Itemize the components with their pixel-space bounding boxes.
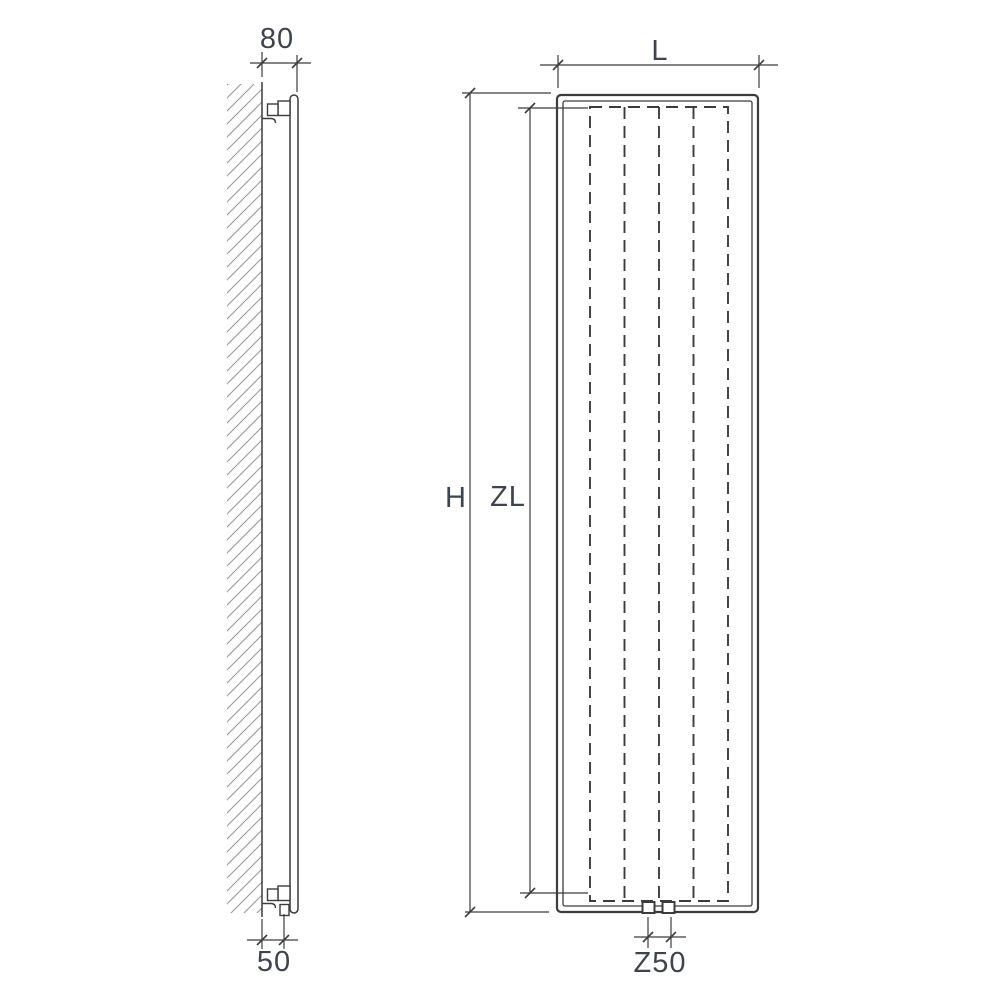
connection-stub-right: [663, 902, 675, 913]
bracket-arm-bottom: [278, 886, 290, 901]
front-view: L H ZL Z50: [445, 35, 778, 979]
dimension-connection-spacing-label: Z50: [634, 947, 687, 979]
radiator-panel-side: [290, 95, 298, 913]
dimension-connection-spacing: Z50: [634, 917, 687, 979]
dimension-width-label: L: [651, 35, 668, 67]
dimension-bottom-offset: 50: [247, 914, 298, 978]
side-view: 80 50: [227, 23, 311, 978]
diagram-svg: 80 50: [0, 0, 1000, 1000]
dimension-depth-label: 80: [260, 23, 294, 55]
bracket-arm-top: [278, 101, 290, 116]
wall-hatch: [227, 84, 262, 913]
bracket-hook-top: [262, 119, 276, 124]
dimension-convector-height-label: ZL: [490, 481, 526, 513]
dimension-height-label: H: [445, 482, 467, 514]
dimension-width: L: [540, 35, 778, 88]
bracket-clip-top: [268, 104, 279, 116]
bracket-hook-bottom: [262, 904, 276, 909]
radiator-dimension-diagram: 80 50: [0, 0, 1000, 1000]
connection-stub-left: [643, 902, 655, 913]
dimension-depth: 80: [250, 23, 311, 92]
pipe-connection-side: [280, 905, 289, 916]
wall-bracket-bottom: [262, 886, 290, 916]
dimension-bottom-offset-label: 50: [257, 946, 291, 978]
bracket-clip-bottom: [268, 889, 279, 901]
wall-bracket-top: [262, 101, 290, 123]
